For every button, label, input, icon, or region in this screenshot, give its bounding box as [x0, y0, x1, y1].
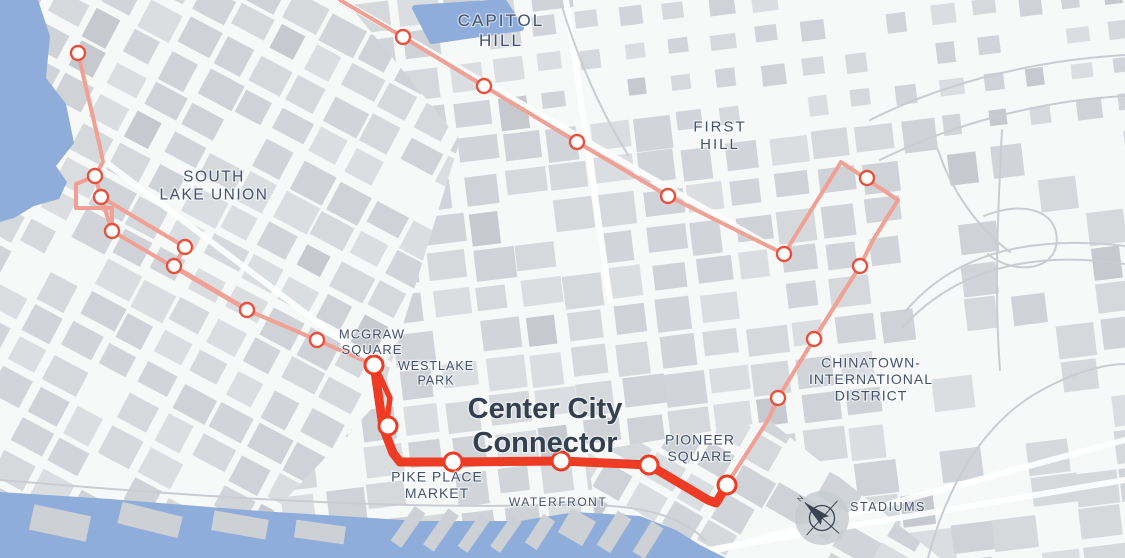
svg-text:SQUARE: SQUARE: [667, 448, 732, 464]
svg-text:LAKE UNION: LAKE UNION: [160, 187, 269, 204]
svg-text:PARK: PARK: [417, 374, 454, 388]
svg-text:CHINATOWN-: CHINATOWN-: [821, 354, 921, 370]
svg-text:MARKET: MARKET: [405, 485, 469, 501]
svg-text:STADIUMS: STADIUMS: [850, 500, 926, 514]
map-label-first-hill: FIRSTHILL: [693, 118, 746, 153]
map-label-pike-place-market: PIKE PLACEMARKET: [391, 468, 483, 501]
svg-text:MCGRAW: MCGRAW: [339, 327, 405, 342]
map-label-stadiums: STADIUMS: [850, 500, 926, 514]
transit-map: NCAPITOLHILLFIRSTHILLSOUTHLAKE UNIONMCGR…: [0, 0, 1125, 558]
svg-text:DISTRICT: DISTRICT: [835, 387, 908, 403]
svg-text:SOUTH: SOUTH: [183, 168, 245, 185]
svg-text:INTERNATIONAL: INTERNATIONAL: [809, 371, 933, 387]
map-label-pioneer-square: PIONEERSQUARE: [665, 431, 735, 464]
svg-text:FIRST: FIRST: [693, 118, 746, 135]
svg-text:Connector: Connector: [473, 427, 618, 459]
svg-text:PIONEER: PIONEER: [665, 431, 735, 447]
svg-text:SQUARE: SQUARE: [342, 342, 403, 357]
map-canvas: NCAPITOLHILLFIRSTHILLSOUTHLAKE UNIONMCGR…: [0, 0, 1125, 558]
svg-text:Center City: Center City: [468, 393, 623, 425]
map-label-waterfront: WATERFRONT: [509, 495, 607, 509]
svg-text:HILL: HILL: [479, 31, 523, 50]
svg-text:PIKE PLACE: PIKE PLACE: [391, 468, 483, 484]
map-label-mcgraw-square: MCGRAWSQUARE: [339, 327, 405, 357]
svg-text:WATERFRONT: WATERFRONT: [509, 495, 607, 509]
svg-text:HILL: HILL: [700, 136, 740, 153]
svg-text:WESTLAKE: WESTLAKE: [398, 359, 474, 373]
svg-text:CAPITOL: CAPITOL: [458, 11, 544, 30]
